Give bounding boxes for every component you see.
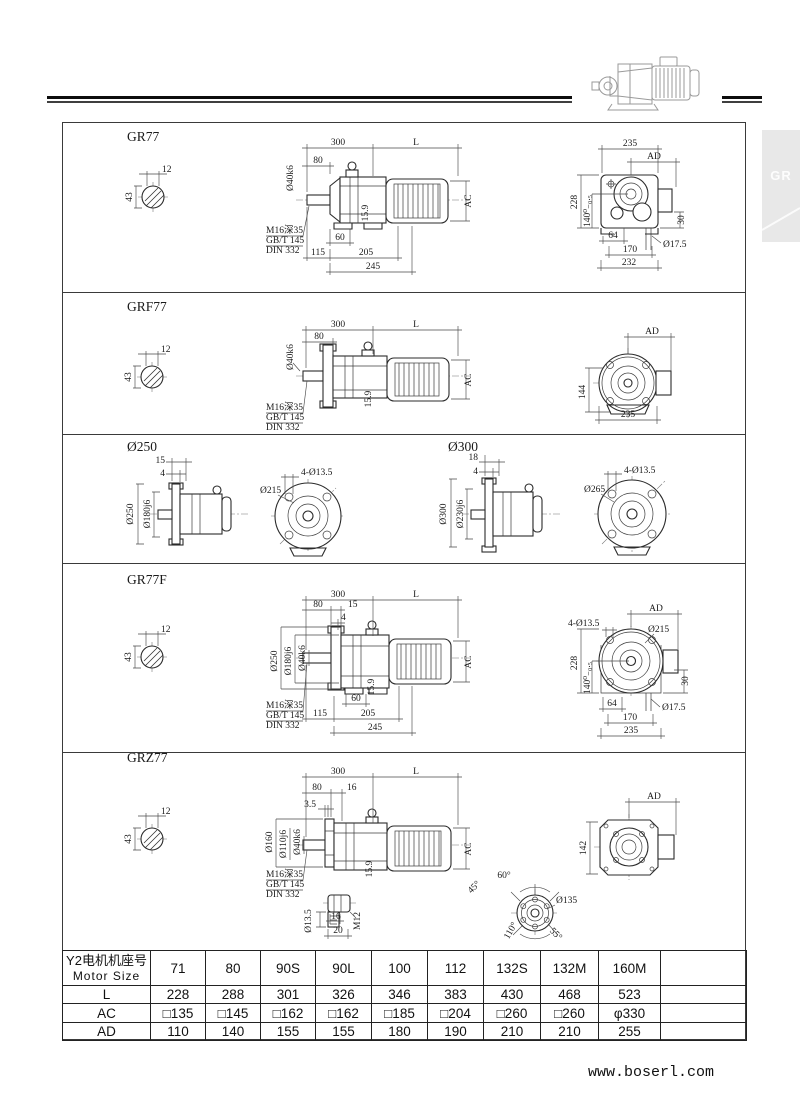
col-header: 90S	[261, 951, 316, 986]
dim-label: Ø180j6	[284, 647, 294, 676]
table-row: AD 110 140 155 155 180 190 210 210 255	[63, 1023, 747, 1041]
section-grz77: GRZ77 12 43	[124, 750, 680, 943]
dim-label: Ø160	[265, 831, 275, 852]
header-cn: Y2电机机座号	[63, 953, 150, 969]
col-header: 90L	[316, 951, 372, 986]
dim-label: 4	[160, 469, 165, 479]
table-cell: 468	[541, 986, 599, 1004]
angle-label: 55°	[547, 926, 564, 943]
table-cell: □135	[151, 1004, 206, 1023]
section-flange300: Ø300 18 4 Ø300 Ø230j6	[439, 439, 670, 555]
gr77-shaft-section-view: 12 43	[125, 165, 172, 212]
gr77-end-view: 235 AD 228 140⁰₋₀.₅ 30 64 170 232 Ø17.5	[570, 139, 687, 271]
dim-label: 60	[351, 694, 361, 704]
dim-label: 205	[359, 248, 374, 258]
table-cell: 180	[372, 1023, 428, 1041]
table-cell: 155	[261, 1023, 316, 1041]
table-header-row: Y2电机机座号 Motor Size 71 80 90S 90L 100 112…	[63, 951, 747, 986]
dim-label: L	[413, 767, 419, 777]
table-cell: □260	[484, 1004, 541, 1023]
dim-label: 232	[622, 258, 637, 268]
thread-note: M16深35	[266, 402, 303, 413]
dim-label: 4	[473, 467, 478, 477]
dim-label: 142	[579, 841, 589, 856]
thread-note: M16深35	[266, 225, 303, 236]
row-label: AC	[63, 1004, 151, 1023]
col-header: 80	[206, 951, 261, 986]
dim-label: Ø17.5	[662, 703, 686, 713]
dim-label: 235	[624, 726, 639, 736]
dim-label: 80	[312, 783, 322, 793]
table-cell: □162	[316, 1004, 372, 1023]
dim-label: 4	[341, 613, 346, 623]
dim-label: 15.9	[361, 204, 371, 221]
dim-label: 245	[366, 262, 381, 272]
dim-label: Ø180j6	[143, 500, 153, 529]
dim-label: Ø13.5	[304, 909, 314, 933]
flange250-side-view: 15 4 Ø250 Ø180j6	[126, 456, 248, 545]
thread-note: M16深35	[266, 700, 303, 711]
dim-label: 228	[570, 656, 580, 671]
row-label: AD	[63, 1023, 151, 1041]
table-cell: 255	[599, 1023, 661, 1041]
dim-label: Ø265	[584, 485, 605, 495]
dim-label: 80	[314, 332, 324, 342]
table-cell: □204	[428, 1004, 484, 1023]
table-cell: 190	[428, 1023, 484, 1041]
dim-label: Ø300	[439, 503, 449, 524]
dim-label: 140⁰₋₀.₅	[583, 662, 593, 694]
col-header: 100	[372, 951, 428, 986]
gr77f-end-view: AD 4-Ø13.5 Ø215 228 140⁰₋₀.₅ 30 64 170 2…	[568, 604, 691, 739]
empty-cell	[661, 1023, 747, 1041]
gr77f-side-view: 300 L 80 15 4 Ø250 Ø180j6 Ø40k6 M16深35 G…	[266, 590, 474, 736]
dim-label: Ø40k6	[286, 165, 296, 191]
dim-label: 115	[313, 709, 327, 719]
table-cell: φ330	[599, 1004, 661, 1023]
dim-label: 228	[570, 195, 580, 210]
empty-cell	[661, 951, 747, 986]
dim-label: 235	[623, 139, 638, 149]
dim-label: M12	[353, 912, 363, 930]
dim-label: 15.9	[365, 860, 375, 877]
dim-label: 170	[623, 713, 638, 723]
dim-label: L	[413, 590, 419, 600]
section-grf77: GRF77 12 43	[124, 299, 675, 433]
table-row: AC □135 □145 □162 □162 □185 □204 □260 □2…	[63, 1004, 747, 1023]
table-cell: 110	[151, 1023, 206, 1041]
dim-label: 3.5	[304, 800, 316, 810]
table-cell: 155	[316, 1023, 372, 1041]
col-header: 160M	[599, 951, 661, 986]
dim-label: L	[413, 320, 419, 330]
section-flange250: Ø250 15 4 Ø250 Ø180j6	[126, 439, 345, 556]
dim-label: 30	[681, 676, 691, 686]
dim-label: 60	[335, 233, 345, 243]
table-cell: 288	[206, 986, 261, 1004]
dim-label: 64	[607, 699, 617, 709]
section-title: GRZ77	[127, 750, 168, 765]
table-cell: 210	[484, 1023, 541, 1041]
dim-label: 12	[161, 625, 171, 635]
table-cell: 210	[541, 1023, 599, 1041]
dim-label: 16	[347, 783, 357, 793]
table-cell: 430	[484, 986, 541, 1004]
thread-note: DIN 332	[266, 246, 300, 256]
dim-label: AC	[464, 373, 474, 386]
grz77-plug-detail: Ø13.5 16 20 M12	[304, 895, 363, 939]
dim-label: 12	[161, 345, 171, 355]
row-label: L	[63, 986, 151, 1004]
catalog-page: GR GR77 12 43	[0, 0, 800, 1108]
dim-label: Ø250	[270, 650, 280, 671]
thread-note: GB/T 145	[266, 880, 304, 890]
section-title: GRF77	[127, 299, 167, 314]
dim-label: 20	[333, 926, 343, 936]
table-cell: 346	[372, 986, 428, 1004]
dim-label: 15.9	[364, 390, 374, 407]
dim-label: Ø250	[126, 503, 136, 524]
table-header-motor-size: Y2电机机座号 Motor Size	[63, 951, 151, 986]
dim-label: 205	[361, 709, 376, 719]
grz77-bolt-circle-view: 60° 45° 110° 55° Ø135	[466, 870, 578, 943]
dim-label: 300	[331, 590, 346, 600]
header-en: Motor Size	[63, 970, 150, 983]
dim-label: Ø215	[260, 486, 281, 496]
dim-label: 4-Ø13.5	[301, 468, 333, 478]
dim-label: 15	[348, 600, 358, 610]
dim-label: 300	[331, 767, 346, 777]
grf77-shaft-section-view: 12 43	[124, 345, 171, 392]
dim-label: 4-Ø13.5	[624, 466, 656, 476]
dim-label: 140⁰₋₀.₅	[583, 195, 593, 227]
col-header: 132M	[541, 951, 599, 986]
empty-cell	[661, 986, 747, 1004]
dim-label: 43	[125, 192, 135, 202]
thread-note: DIN 332	[266, 890, 300, 900]
thread-note: M16深35	[266, 869, 303, 880]
dim-label: Ø215	[648, 625, 669, 635]
dim-label: 12	[162, 165, 172, 175]
angle-label: 45°	[466, 879, 483, 896]
dim-label: 64	[608, 231, 618, 241]
section-gr77f: GR77F 12 43	[124, 572, 691, 739]
dim-label: 30	[677, 215, 687, 225]
dim-label: 43	[124, 372, 134, 382]
table-cell: 326	[316, 986, 372, 1004]
table-cell: 523	[599, 986, 661, 1004]
flange300-front-view: Ø265 4-Ø13.5	[584, 466, 670, 555]
table-cell: □145	[206, 1004, 261, 1023]
dim-label: 43	[124, 834, 134, 844]
grz77-side-view: 300 L 80 16 3.5 Ø160 Ø110j6 Ø40k6 M16深35…	[265, 767, 474, 900]
dim-label: Ø17.5	[663, 240, 687, 250]
dim-label: Ø40k6	[293, 829, 303, 855]
dim-label: 170	[623, 245, 638, 255]
dim-label: 115	[311, 248, 325, 258]
grz77-shaft-section-view: 12 43	[124, 807, 171, 854]
flange300-side-view: 18 4 Ø300 Ø230j6	[439, 453, 560, 552]
dim-label: 15.9	[367, 678, 377, 695]
dim-label: Ø40k6	[286, 344, 296, 370]
dim-label: 245	[368, 723, 383, 733]
grz77-end-view: AD 142	[579, 792, 680, 880]
table-cell: □260	[541, 1004, 599, 1023]
col-header: 112	[428, 951, 484, 986]
dim-label: Ø230j6	[456, 500, 466, 529]
dim-label: 15	[156, 456, 166, 466]
table-row: L 228 288 301 326 346 383 430 468 523	[63, 986, 747, 1004]
col-header: 71	[151, 951, 206, 986]
flange-title: Ø300	[448, 439, 478, 454]
dim-label: 235	[621, 410, 636, 420]
dim-label: AC	[464, 655, 474, 668]
dim-label: Ø135	[556, 896, 577, 906]
gr77f-shaft-section-view: 12 43	[124, 625, 171, 672]
thread-note: DIN 332	[266, 423, 300, 433]
thread-note: GB/T 145	[266, 236, 304, 246]
dim-label: 300	[331, 138, 346, 148]
dim-label: AD	[647, 152, 661, 162]
col-header: 132S	[484, 951, 541, 986]
dim-label: 16	[331, 912, 341, 922]
table-cell: 228	[151, 986, 206, 1004]
gr77-side-view: 300 L 80 Ø40k6 M16深35 GB/T 145 DIN 332 1…	[266, 138, 474, 275]
dim-label: 80	[313, 156, 323, 166]
empty-cell	[661, 1004, 747, 1023]
table-cell: 383	[428, 986, 484, 1004]
dim-label: AD	[649, 604, 663, 614]
dim-label: 43	[124, 652, 134, 662]
dim-label: AD	[647, 792, 661, 802]
flange-title: Ø250	[127, 439, 157, 454]
flange250-front-view: Ø215 4-Ø13.5	[260, 468, 345, 556]
dim-label: Ø110j6	[279, 830, 289, 858]
grf77-end-view: AD 144 235	[578, 327, 675, 424]
dim-label: AD	[645, 327, 659, 337]
dim-label: 144	[578, 385, 588, 400]
dim-label: L	[413, 138, 419, 148]
table-cell: 301	[261, 986, 316, 1004]
table-cell: 140	[206, 1023, 261, 1041]
table-cell: □185	[372, 1004, 428, 1023]
angle-label: 60°	[497, 870, 511, 881]
website-url: www.boserl.com	[588, 1064, 714, 1081]
motor-size-table: Y2电机机座号 Motor Size 71 80 90S 90L 100 112…	[62, 950, 747, 1041]
thread-note: GB/T 145	[266, 711, 304, 721]
section-gr77: GR77 12 43	[125, 129, 687, 275]
dim-label: 4-Ø13.5	[568, 619, 600, 629]
dim-label: AC	[464, 194, 474, 207]
section-title: GR77	[127, 129, 160, 144]
thread-note: GB/T 145	[266, 413, 304, 423]
section-title: GR77F	[127, 572, 167, 587]
technical-drawings: GR77 12 43	[0, 0, 800, 1108]
grf77-side-view: 300 L 80 Ø40k6 M16深35 GB/T 145 DIN 332 1…	[266, 320, 474, 433]
dim-label: 300	[331, 320, 346, 330]
thread-note: DIN 332	[266, 721, 300, 731]
dim-label: 18	[469, 453, 479, 463]
dim-label: 12	[161, 807, 171, 817]
dim-label: AC	[464, 842, 474, 855]
dim-label: 80	[313, 600, 323, 610]
table-cell: □162	[261, 1004, 316, 1023]
